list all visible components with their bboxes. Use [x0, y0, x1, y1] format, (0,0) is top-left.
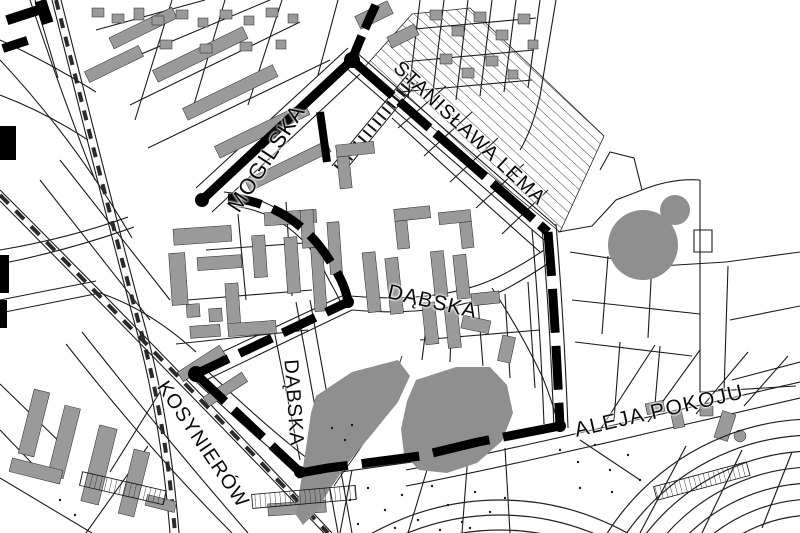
pond-and-groves	[296, 195, 690, 525]
industrial-blocks	[0, 0, 53, 328]
city-map: MOGILSKA STANISŁAWA LEMA DĄBSKA DĄBSKA K…	[0, 0, 800, 533]
